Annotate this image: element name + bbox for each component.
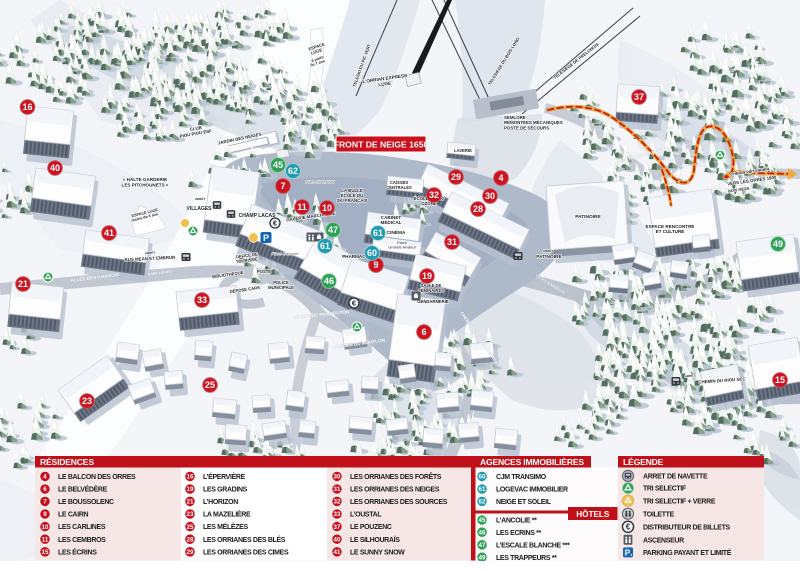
svg-text:41: 41: [334, 549, 341, 556]
svg-text:LE SUNNY SNOW: LE SUNNY SNOW: [350, 549, 405, 556]
svg-text:28: 28: [187, 536, 194, 543]
svg-text:6: 6: [421, 327, 426, 337]
svg-text:10: 10: [42, 524, 49, 531]
svg-text:15: 15: [42, 549, 49, 556]
svg-text:PATINOIRE: PATINOIRE: [575, 214, 601, 220]
svg-text:LES ORRIANES DES FORÊTS: LES ORRIANES DES FORÊTS: [350, 472, 442, 481]
svg-text:23: 23: [82, 396, 92, 406]
svg-text:49: 49: [773, 239, 783, 249]
svg-text:CENTRALES: CENTRALES: [386, 185, 412, 190]
svg-text:LES CEMBROS: LES CEMBROS: [58, 537, 106, 544]
svg-text:30: 30: [334, 474, 341, 481]
svg-text:ARRÊT: ARRÊT: [145, 250, 156, 256]
svg-text:L’ESCALE BLANCHE ***: L’ESCALE BLANCHE ***: [496, 542, 570, 549]
svg-text:MÉDICAL: MÉDICAL: [381, 218, 402, 225]
svg-text:Grande Hodoul: Grande Hodoul: [388, 245, 416, 249]
svg-text:33: 33: [334, 511, 341, 518]
svg-text:LES ECRINS **: LES ECRINS **: [496, 530, 541, 537]
svg-text:P: P: [625, 547, 631, 557]
svg-text:LOGEVAC IMMOBILIER: LOGEVAC IMMOBILIER: [496, 487, 568, 494]
svg-text:29: 29: [187, 549, 194, 556]
svg-text:LAVERIE: LAVERIE: [454, 148, 472, 153]
svg-text:46: 46: [324, 276, 334, 286]
svg-text:61: 61: [479, 486, 486, 493]
svg-text:Place: Place: [397, 241, 407, 245]
svg-text:GENDARMERIE: GENDARMERIE: [417, 299, 449, 304]
svg-text:LES ÉCRINS: LES ÉCRINS: [58, 547, 97, 556]
svg-text:MUNICIPALE: MUNICIPALE: [268, 285, 294, 290]
svg-text:Place du festival: Place du festival: [305, 179, 334, 184]
svg-text:60: 60: [367, 248, 377, 258]
svg-text:TRI SELECTIF + VERRE: TRI SELECTIF + VERRE: [643, 498, 716, 505]
svg-text:RÉSIDENCES: RÉSIDENCES: [40, 457, 94, 467]
svg-text:7: 7: [280, 181, 285, 191]
svg-text:LES PITCHOUNETS »: LES PITCHOUNETS »: [122, 182, 169, 187]
svg-text:LE BALCON DES ORRES: LE BALCON DES ORRES: [58, 474, 136, 481]
svg-text:« HALTE GARDERIE: « HALTE GARDERIE: [123, 177, 167, 182]
svg-text:30: 30: [485, 191, 495, 201]
svg-text:11: 11: [297, 202, 307, 212]
svg-text:47: 47: [479, 542, 486, 549]
svg-text:NEIGE ET SOLEIL: NEIGE ET SOLEIL: [496, 499, 552, 506]
svg-text:L’ÉPERVIÈRE: L’ÉPERVIÈRE: [203, 472, 246, 481]
svg-text:40: 40: [334, 536, 341, 543]
svg-text:LES ORRIANES DES SOURCES: LES ORRIANES DES SOURCES: [350, 499, 448, 506]
svg-text:CHAMP LACAS: CHAMP LACAS: [239, 213, 277, 219]
svg-text:CJM TRANSIMO: CJM TRANSIMO: [496, 474, 547, 481]
svg-text:25: 25: [187, 524, 194, 531]
svg-text:16: 16: [187, 474, 194, 481]
svg-text:21: 21: [18, 279, 28, 289]
svg-text:49: 49: [479, 554, 486, 561]
svg-text:ET CULTURE: ET CULTURE: [656, 229, 685, 234]
svg-text:LÉGENDE: LÉGENDE: [623, 457, 664, 467]
svg-text:POSTE: POSTE: [257, 269, 271, 274]
svg-text:VILLAGES: VILLAGES: [186, 206, 212, 212]
svg-text:AGENCES IMMOBILIÈRES: AGENCES IMMOBILIÈRES: [480, 457, 584, 467]
svg-text:11: 11: [42, 536, 49, 543]
svg-text:TRI SELECTIF: TRI SELECTIF: [643, 486, 687, 493]
svg-text:45: 45: [273, 160, 283, 170]
svg-text:19: 19: [422, 271, 432, 281]
svg-text:61: 61: [320, 241, 330, 251]
svg-text:ARRÊT: ARRÊT: [685, 373, 696, 379]
svg-text:60: 60: [479, 474, 486, 481]
svg-text:L’ANCOLIE **: L’ANCOLIE **: [496, 518, 537, 525]
svg-text:4: 4: [498, 173, 503, 183]
svg-text:21: 21: [187, 499, 194, 506]
svg-text:25: 25: [205, 380, 215, 390]
svg-text:7: 7: [43, 499, 47, 506]
svg-text:31: 31: [334, 486, 341, 493]
svg-text:23: 23: [187, 511, 194, 518]
svg-text:PATINOIRE: PATINOIRE: [536, 254, 562, 260]
svg-text:62: 62: [479, 499, 486, 506]
svg-text:LES TRAPPEURS **: LES TRAPPEURS **: [496, 555, 557, 562]
svg-text:Place d’accueil: Place d’accueil: [272, 251, 299, 256]
svg-text:62: 62: [288, 166, 298, 176]
svg-text:LE CAIRN: LE CAIRN: [58, 512, 89, 519]
svg-text:40: 40: [50, 163, 60, 173]
svg-text:ASCENSEUR: ASCENSEUR: [643, 537, 684, 544]
svg-text:31: 31: [447, 237, 457, 247]
svg-text:LES ORRIANES DES BLÉS: LES ORRIANES DES BLÉS: [203, 535, 286, 544]
svg-text:9: 9: [43, 511, 47, 518]
svg-text:LE POUZENC: LE POUZENC: [350, 524, 392, 531]
svg-text:15: 15: [775, 375, 785, 385]
svg-text:P: P: [263, 233, 269, 243]
svg-text:10: 10: [322, 203, 332, 213]
svg-text:61: 61: [373, 228, 383, 238]
svg-text:L’HORIZON: L’HORIZON: [203, 499, 238, 506]
svg-text:19: 19: [187, 486, 194, 493]
svg-text:37: 37: [334, 524, 341, 531]
svg-text:6: 6: [43, 486, 47, 493]
svg-text:28: 28: [473, 204, 483, 214]
svg-text:32: 32: [429, 190, 439, 200]
svg-text:PARKING PAYANT ET LIMITÉ: PARKING PAYANT ET LIMITÉ: [643, 548, 732, 557]
svg-text:32: 32: [334, 499, 341, 506]
svg-text:LE BOUSSOLENC: LE BOUSSOLENC: [58, 499, 114, 506]
svg-text:SÉMINAIRES: SÉMINAIRES: [418, 288, 444, 293]
svg-text:HÔTELS: HÔTELS: [576, 508, 610, 519]
svg-text:LES ORRIANES DES CIMES: LES ORRIANES DES CIMES: [203, 549, 289, 556]
svg-text:DISTRIBUTEUR DE BILLETS: DISTRIBUTEUR DE BILLETS: [643, 524, 731, 531]
svg-text:45: 45: [479, 517, 486, 524]
svg-text:ARRÊT: ARRÊT: [543, 248, 554, 253]
svg-text:LE BELVÉDÈRE: LE BELVÉDÈRE: [58, 485, 108, 494]
svg-text:47: 47: [328, 225, 338, 235]
svg-text:16: 16: [22, 102, 32, 112]
svg-text:46: 46: [479, 529, 486, 536]
svg-text:L’OUSTAL: L’OUSTAL: [350, 512, 382, 519]
svg-text:TOILETTE: TOILETTE: [643, 511, 675, 518]
svg-text:LE SILHOURAÏS: LE SILHOURAÏS: [350, 536, 400, 544]
svg-text:9: 9: [373, 260, 378, 270]
svg-text:29: 29: [451, 172, 461, 182]
svg-text:33: 33: [197, 295, 207, 305]
svg-text:37: 37: [634, 92, 644, 102]
svg-text:41: 41: [104, 228, 114, 238]
svg-text:SKI FRANÇAIS: SKI FRANÇAIS: [336, 198, 367, 203]
svg-text:LES GRADINS: LES GRADINS: [203, 487, 248, 494]
svg-text:ARRÊT: ARRÊT: [195, 196, 206, 201]
svg-text:4: 4: [43, 474, 47, 481]
svg-text:POSTE DE SECOURS: POSTE DE SECOURS: [504, 125, 549, 130]
svg-text:LES CARLINES: LES CARLINES: [58, 524, 106, 531]
svg-text:ARRET DE NAVETTE: ARRET DE NAVETTE: [643, 474, 708, 481]
svg-text:FRONT DE NEIGE 1650: FRONT DE NEIGE 1650: [334, 140, 429, 150]
svg-text:LES ORRIANES DES NEIGES: LES ORRIANES DES NEIGES: [350, 487, 440, 494]
svg-text:LA MAZELIÈRE: LA MAZELIÈRE: [203, 510, 251, 519]
svg-text:LES MÉLÈZES: LES MÉLÈZES: [203, 522, 248, 531]
svg-text:€: €: [626, 523, 631, 532]
